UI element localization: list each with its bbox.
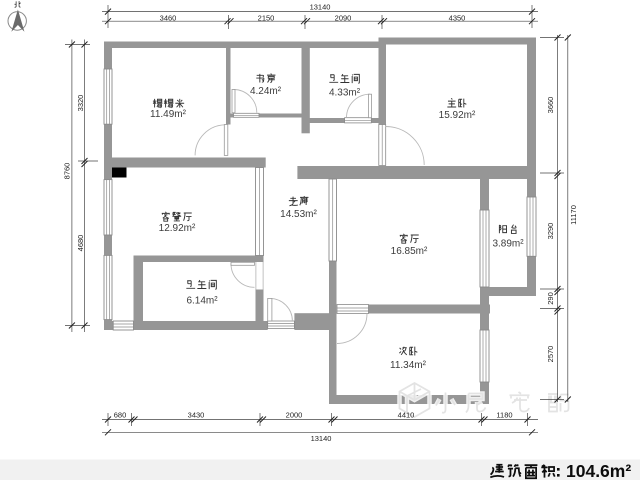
svg-text:3290: 3290 — [546, 223, 555, 240]
svg-text:15.92m²: 15.92m² — [439, 110, 476, 121]
svg-text:3460: 3460 — [160, 13, 177, 22]
svg-text:2150: 2150 — [258, 13, 275, 22]
svg-text:12.92m²: 12.92m² — [159, 223, 196, 234]
svg-text:11.34m²: 11.34m² — [390, 360, 427, 371]
svg-text:2000: 2000 — [286, 410, 303, 419]
svg-text:8760: 8760 — [63, 163, 72, 180]
svg-text:6.14m²: 6.14m² — [186, 296, 218, 307]
svg-text:3660: 3660 — [546, 97, 555, 114]
svg-text:2570: 2570 — [546, 346, 555, 363]
svg-text:680: 680 — [114, 410, 127, 419]
svg-text:14.53m²: 14.53m² — [280, 209, 317, 220]
svg-text:16.85m²: 16.85m² — [391, 246, 428, 257]
svg-text:1180: 1180 — [496, 410, 512, 419]
svg-text:2090: 2090 — [335, 13, 352, 22]
svg-text:13140: 13140 — [310, 3, 331, 12]
svg-text:3.89m²: 3.89m² — [492, 239, 524, 250]
svg-text:104.6m²: 104.6m² — [566, 461, 631, 480]
svg-text:3320: 3320 — [76, 95, 85, 112]
svg-text:13140: 13140 — [311, 434, 332, 443]
svg-text:11170: 11170 — [569, 205, 578, 225]
svg-text:11.49m²: 11.49m² — [150, 109, 187, 120]
svg-text:4680: 4680 — [76, 235, 85, 252]
svg-text:3430: 3430 — [188, 410, 205, 419]
svg-text:290: 290 — [546, 292, 555, 305]
svg-text:4350: 4350 — [449, 13, 466, 22]
svg-text:4.24m²: 4.24m² — [250, 86, 282, 97]
svg-text:4410: 4410 — [398, 410, 415, 419]
svg-text:4.33m²: 4.33m² — [329, 88, 361, 99]
